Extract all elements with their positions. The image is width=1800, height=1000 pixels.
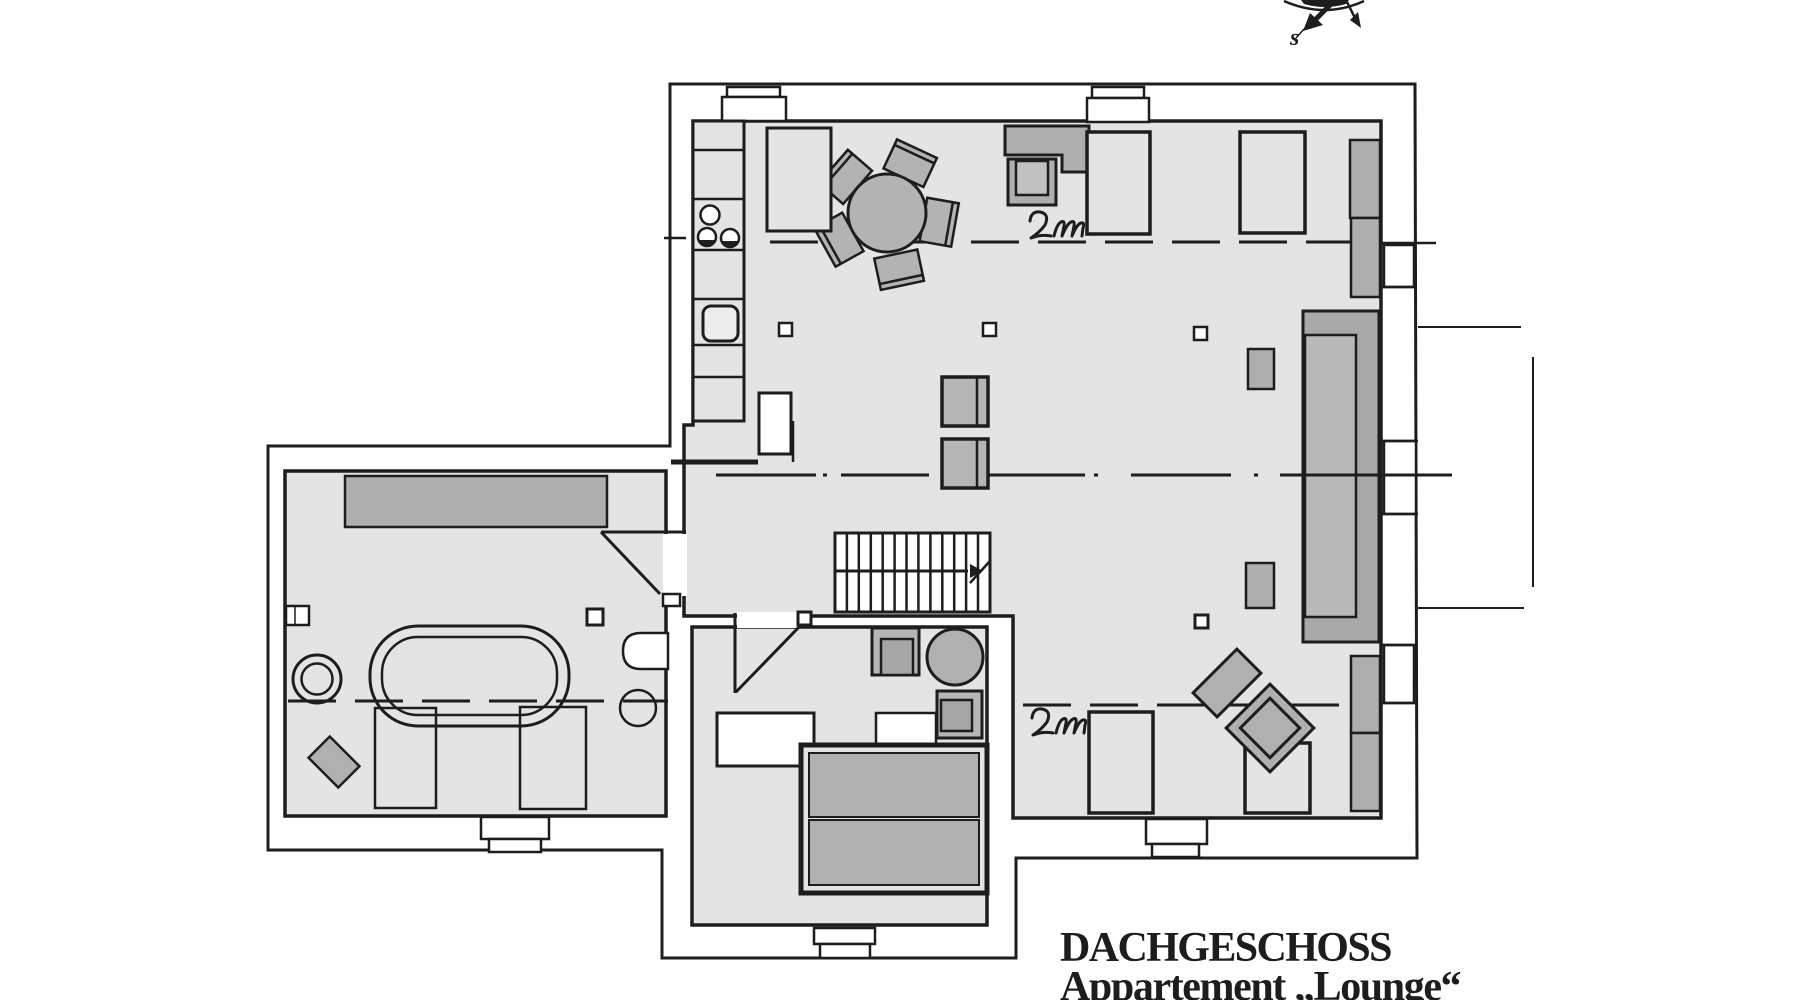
svg-text:Appartement „Lounge“: Appartement „Lounge“	[1060, 964, 1461, 1000]
svg-text:s: s	[1289, 25, 1299, 51]
